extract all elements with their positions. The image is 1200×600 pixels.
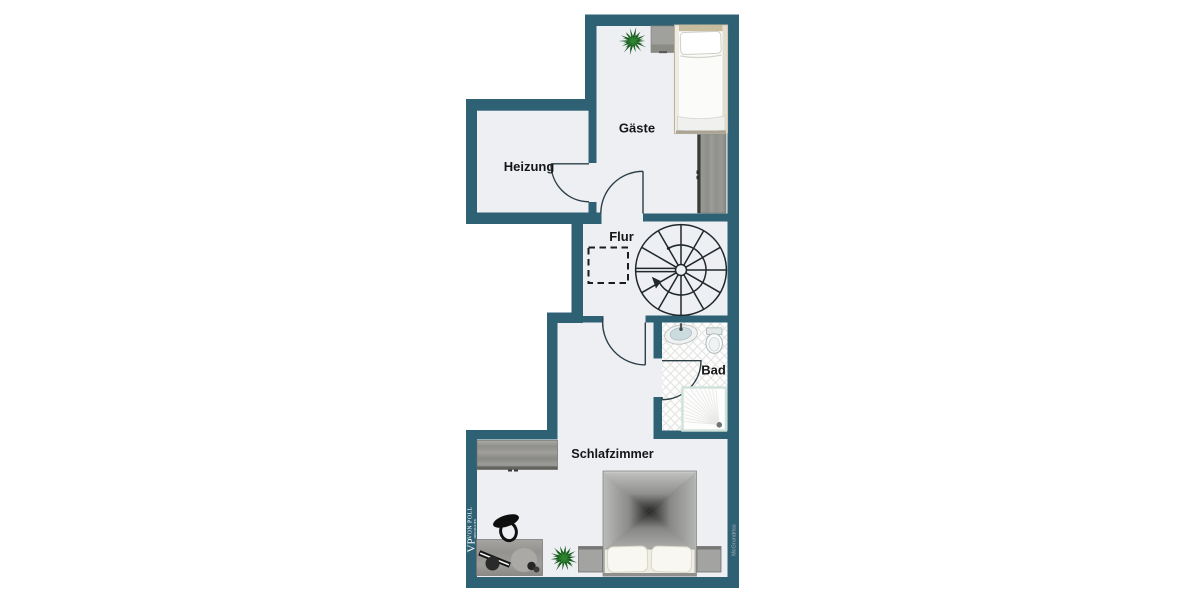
svg-text:Heizung: Heizung (504, 159, 555, 174)
svg-text:Gäste: Gäste (619, 121, 655, 136)
svg-text:Flur: Flur (609, 229, 634, 244)
svg-text:Schlafzimmer: Schlafzimmer (571, 447, 654, 461)
svg-text:VP: VP (466, 538, 478, 552)
svg-text:VON POLL: VON POLL (468, 506, 474, 539)
svg-text:McGrundriss: McGrundriss (732, 524, 738, 556)
svg-text:IMMOBILIEN: IMMOBILIEN (474, 519, 477, 539)
svg-text:Bad: Bad (701, 363, 726, 378)
